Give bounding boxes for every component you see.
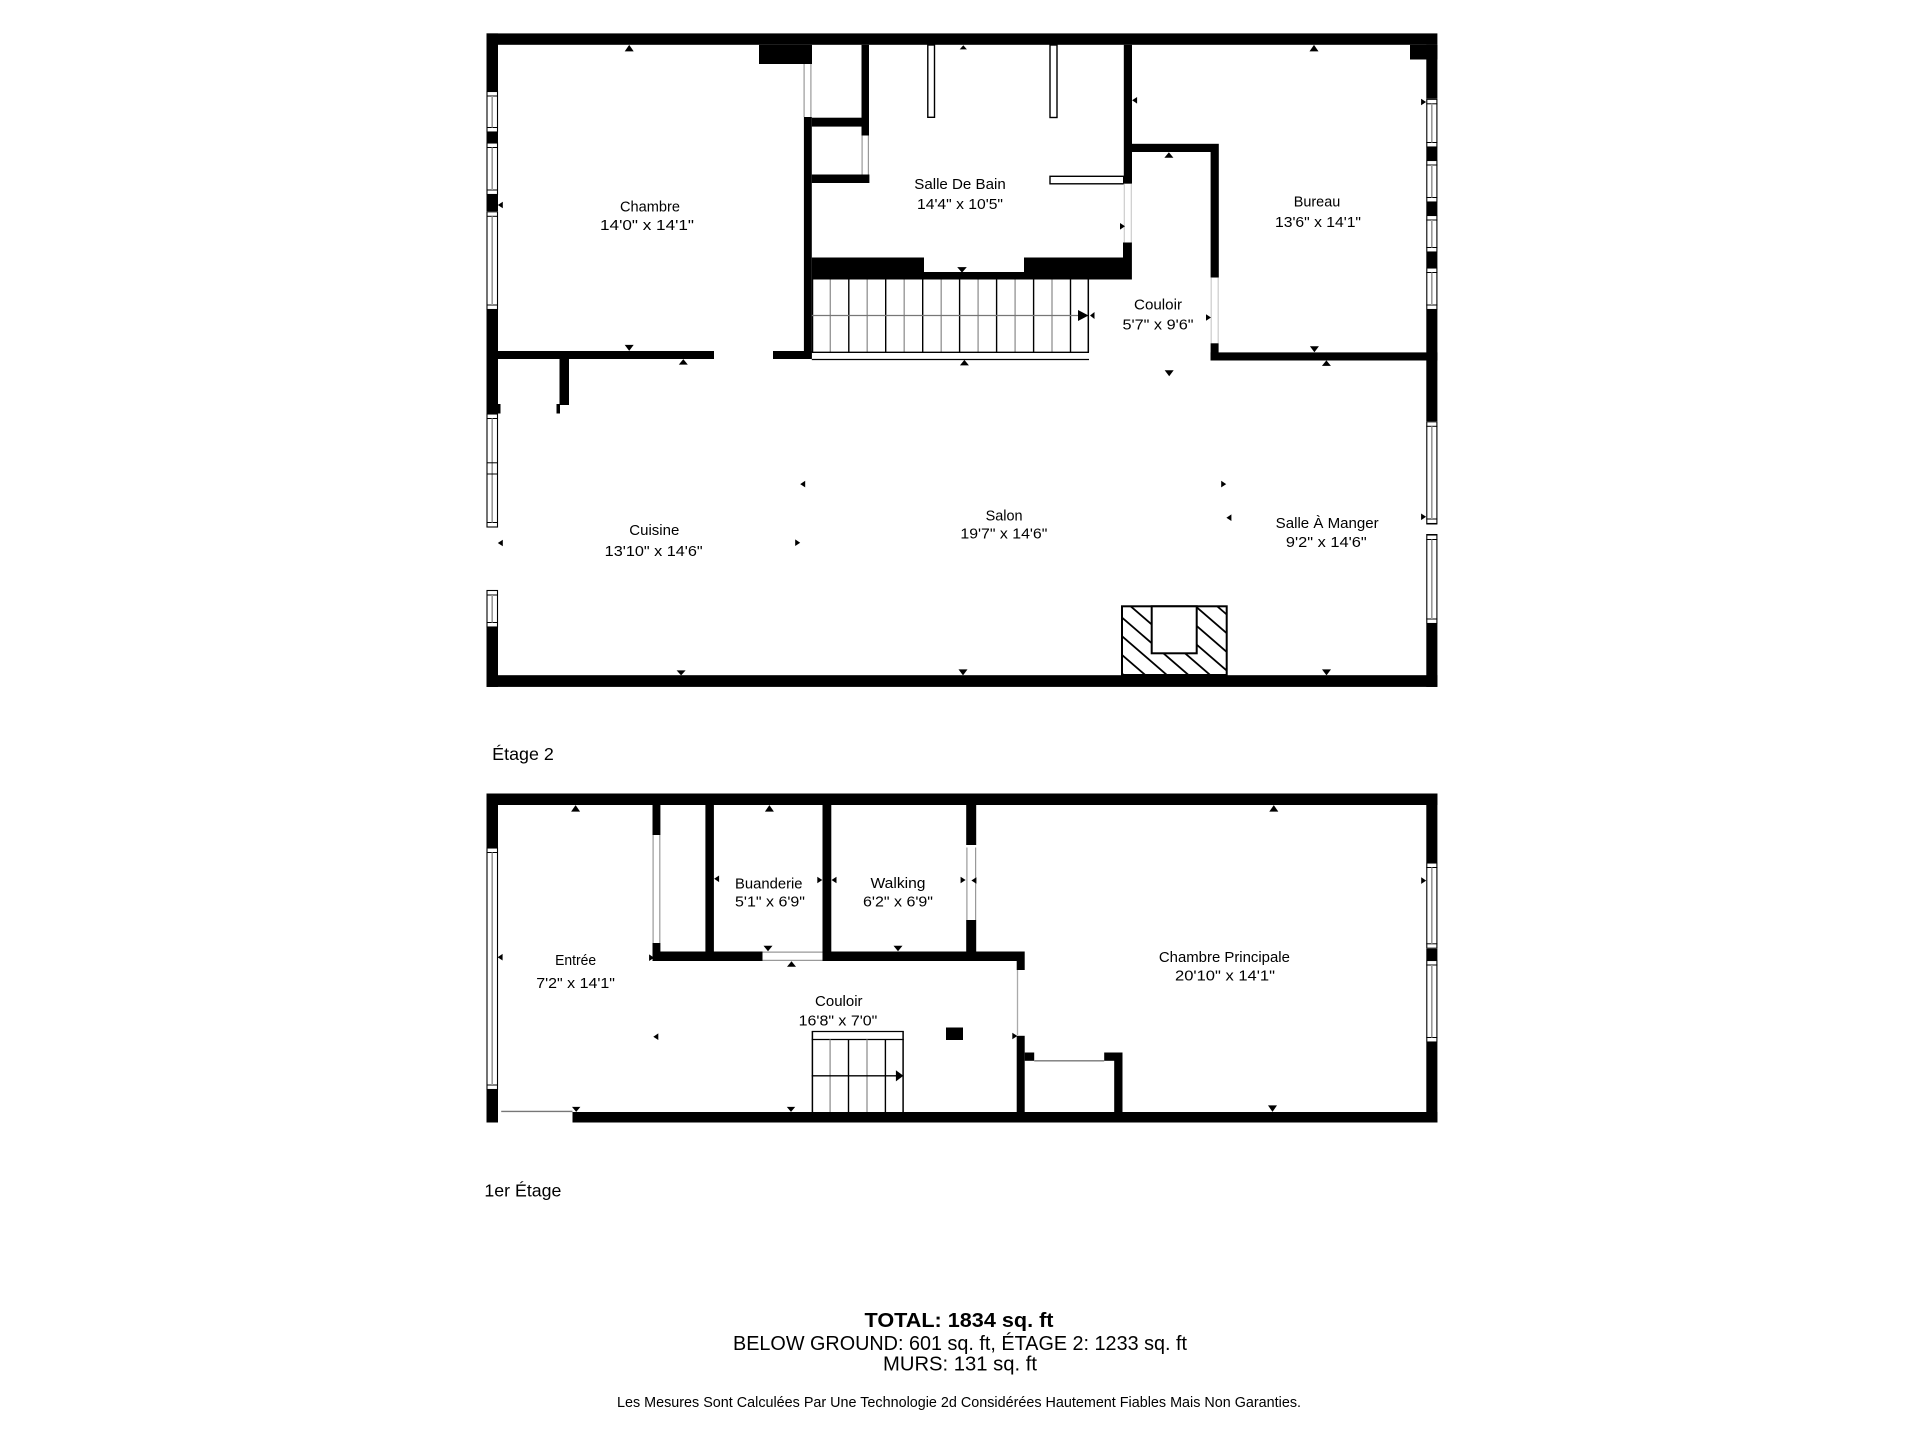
svg-text:13'6" x 14'1": 13'6" x 14'1" xyxy=(1275,215,1361,231)
svg-text:1er Étage: 1er Étage xyxy=(484,1181,561,1201)
svg-text:5'7" x 9'6": 5'7" x 9'6" xyxy=(1123,318,1194,334)
svg-text:Étage 2: Étage 2 xyxy=(492,744,554,764)
svg-text:Chambre Principale: Chambre Principale xyxy=(1159,950,1290,966)
svg-text:14'4" x 10'5": 14'4" x 10'5" xyxy=(917,197,1003,213)
svg-text:Bureau: Bureau xyxy=(1294,195,1341,211)
svg-text:14'0" x 14'1": 14'0" x 14'1" xyxy=(600,218,694,234)
svg-text:Les Mesures Sont Calculées Par: Les Mesures Sont Calculées Par Une Techn… xyxy=(617,1394,1301,1411)
svg-text:BELOW GROUND: 601 sq. ft, ÉTAG: BELOW GROUND: 601 sq. ft, ÉTAGE 2: 1233 … xyxy=(733,1332,1187,1355)
svg-text:13'10" x 14'6": 13'10" x 14'6" xyxy=(605,544,703,560)
svg-text:7'2" x 14'1": 7'2" x 14'1" xyxy=(536,976,615,992)
svg-text:19'7" x 14'6": 19'7" x 14'6" xyxy=(960,527,1047,543)
svg-text:MURS: 131 sq. ft: MURS: 131 sq. ft xyxy=(883,1354,1037,1376)
svg-text:Chambre: Chambre xyxy=(620,200,680,216)
svg-text:Entrée: Entrée xyxy=(555,953,596,969)
svg-text:Couloir: Couloir xyxy=(815,994,863,1010)
svg-text:Walking: Walking xyxy=(871,876,926,892)
svg-text:Buanderie: Buanderie xyxy=(735,877,803,893)
svg-text:TOTAL: 1834 sq. ft: TOTAL: 1834 sq. ft xyxy=(865,1310,1054,1332)
svg-text:Couloir: Couloir xyxy=(1134,298,1182,314)
svg-text:6'2" x 6'9": 6'2" x 6'9" xyxy=(863,895,933,911)
svg-text:5'1" x 6'9": 5'1" x 6'9" xyxy=(735,895,805,911)
svg-text:9'2" x 14'6": 9'2" x 14'6" xyxy=(1286,535,1367,551)
svg-text:Cuisine: Cuisine xyxy=(629,523,679,539)
svg-text:Salon: Salon xyxy=(986,509,1023,525)
svg-text:Salle De Bain: Salle De Bain xyxy=(914,177,1006,193)
svg-text:Salle À Manger: Salle À Manger xyxy=(1276,515,1379,532)
svg-text:20'10" x 14'1": 20'10" x 14'1" xyxy=(1175,969,1275,985)
svg-text:16'8" x 7'0": 16'8" x 7'0" xyxy=(799,1014,878,1030)
